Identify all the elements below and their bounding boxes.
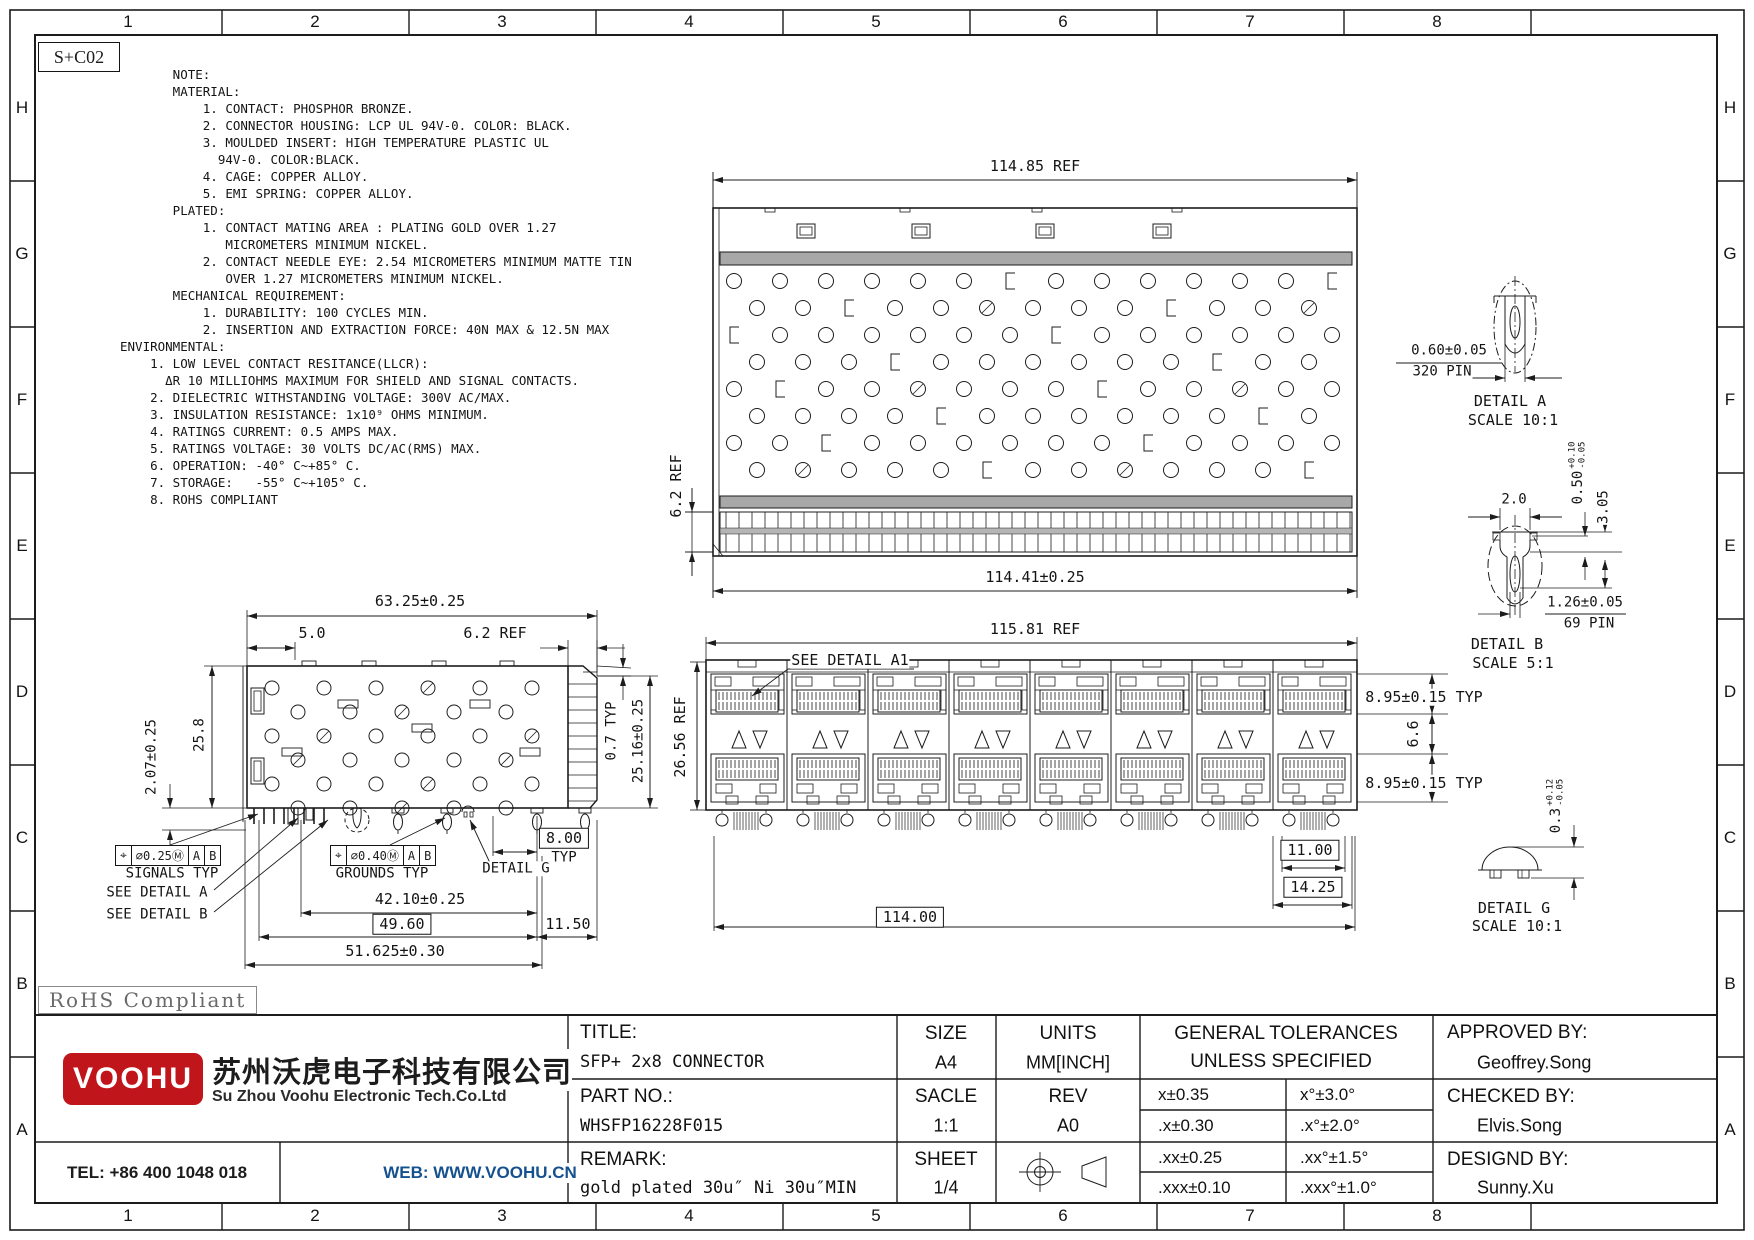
gdt-grounds-frame: ⌖⌀0.40ⓂAB xyxy=(330,845,436,866)
gdt-signals-tolerance: ⌀0.25Ⓜ xyxy=(131,846,188,865)
gdt-grounds-tolerance: ⌀0.40Ⓜ xyxy=(346,846,403,865)
gdt-signals-datum-a: A xyxy=(188,846,204,865)
zone-col-label: 3 xyxy=(496,12,507,32)
see-detail-a-label: SEE DETAIL A xyxy=(105,885,208,900)
detail-b-neck-dim: 0.50+0.10-0.05 xyxy=(1569,441,1588,506)
detail-g-dim: 0.3+0.12-0.05 xyxy=(1547,778,1566,834)
remark-value: gold plated 30u″ Ni 30u″MIN xyxy=(580,1178,856,1198)
dim-side-51: 51.625±0.30 xyxy=(344,943,445,960)
units-label: UNITS xyxy=(1040,1023,1097,1045)
zone-col-label: 4 xyxy=(683,1206,694,1226)
zone-row-label: E xyxy=(1723,536,1736,556)
detail-b-width-dim: 2.0 xyxy=(1500,492,1527,507)
tolerance-linear-4: .xxx±0.10 xyxy=(1158,1178,1231,1198)
notes-block: NOTE: MATERIAL: 1. CONTACT: PHOSPHOR BRO… xyxy=(120,66,632,508)
dim-side-height: 25.16±0.25 xyxy=(631,698,646,784)
units-value: MM[INCH] xyxy=(1026,1053,1110,1074)
scale-value: 1:1 xyxy=(933,1116,958,1137)
detail-b-eye-dim: 1.26±0.05 xyxy=(1546,595,1624,610)
zone-row-label: E xyxy=(15,536,28,556)
tolerance-angular-4: .xxx°±1.0° xyxy=(1300,1178,1377,1198)
zone-row-label: H xyxy=(15,98,29,118)
company-name-en: Su Zhou Voohu Electronic Tech.Co.Ltd xyxy=(212,1088,507,1106)
zone-col-label: 5 xyxy=(870,1206,881,1226)
signals-typ-label: SIGNALS TYP xyxy=(125,866,220,881)
zone-col-label: 6 xyxy=(1057,1206,1068,1226)
designed-by-label: DESIGND BY: xyxy=(1447,1149,1568,1171)
dim-side-lip: 0.7 TYP xyxy=(604,700,619,761)
zone-row-label: C xyxy=(1723,828,1737,848)
size-value: A4 xyxy=(935,1053,957,1074)
dim-side-comb-ref: 6.2 REF xyxy=(462,625,527,642)
tolerances-header-2: UNLESS SPECIFIED xyxy=(1190,1051,1372,1073)
company-name-cn: 苏州沃虎电子科技有限公司 xyxy=(212,1049,572,1091)
dim-front-14: 14.25 xyxy=(1283,877,1342,898)
zone-row-label: F xyxy=(1724,390,1736,410)
zone-col-label: 7 xyxy=(1244,12,1255,32)
company-tel: TEL: +86 400 1048 018 xyxy=(67,1163,247,1183)
zone-row-label: H xyxy=(1723,98,1737,118)
zone-row-label: D xyxy=(1723,682,1737,702)
gdt-grounds-datum-a: A xyxy=(403,846,419,865)
zone-col-label: 2 xyxy=(309,1206,320,1226)
checked-by-value: Elvis.Song xyxy=(1477,1116,1562,1137)
dim-front-port-bot: 8.95±0.15 TYP xyxy=(1364,775,1483,792)
remark-label: REMARK: xyxy=(580,1149,667,1171)
part-no-value: WHSFP16228F015 xyxy=(580,1116,723,1136)
zone-row-label: B xyxy=(1723,974,1736,994)
gdt-grounds-datum-b: B xyxy=(419,846,435,865)
title-label: TITLE: xyxy=(580,1022,637,1044)
tolerance-angular-2: .x°±2.0° xyxy=(1300,1116,1360,1136)
dim-side-total-width: 63.25±0.25 xyxy=(374,593,466,610)
dim-side-pitch: 8.00 xyxy=(539,828,589,849)
checked-by-label: CHECKED BY: xyxy=(1447,1086,1575,1108)
detail-b-neck-tolerance: +0.10-0.05 xyxy=(1569,442,1588,469)
detail-b-title: DETAIL B xyxy=(1470,636,1544,653)
detail-a-title: DETAIL A xyxy=(1473,393,1547,410)
grounds-typ-label: GROUNDS TYP xyxy=(335,866,430,881)
detail-b-neck-value: 0.50 xyxy=(1570,471,1586,505)
zone-row-label: F xyxy=(16,390,28,410)
detail-g-value: 0.3 xyxy=(1548,808,1564,833)
dim-front-height-ref: 26.56 REF xyxy=(672,695,689,778)
tolerance-angular-3: .xx°±1.5° xyxy=(1300,1148,1368,1168)
logo-brand-text: VOOHU xyxy=(73,1062,193,1096)
detail-a-dim: 0.60±0.05 xyxy=(1410,343,1488,358)
zone-col-label: 8 xyxy=(1431,1206,1442,1226)
dim-side-42: 42.10±0.25 xyxy=(374,891,466,908)
zone-col-label: 7 xyxy=(1244,1206,1255,1226)
detail-b-scale: SCALE 5:1 xyxy=(1471,655,1554,672)
zone-col-label: 2 xyxy=(309,12,320,32)
rev-value: A0 xyxy=(1057,1116,1079,1137)
gdt-signals-frame: ⌖⌀0.25ⓂAB xyxy=(115,845,221,866)
part-no-label: PART NO.: xyxy=(580,1086,673,1108)
zone-col-label: 1 xyxy=(122,1206,133,1226)
position-symbol-icon: ⌖ xyxy=(116,846,131,865)
position-symbol-icon: ⌖ xyxy=(331,846,346,865)
dim-front-11: 11.00 xyxy=(1280,840,1339,861)
doc-code: S+C02 xyxy=(38,42,120,72)
zone-col-label: 8 xyxy=(1431,12,1442,32)
dim-top-width-ref: 114.85 REF xyxy=(989,158,1081,175)
see-detail-b-label: SEE DETAIL B xyxy=(105,907,208,922)
drawing-sheet: S+C02 NOTE: MATERIAL: 1. CONTACT: PHOSPH… xyxy=(0,0,1754,1240)
detail-g-tolerance: +0.12-0.05 xyxy=(1547,779,1566,806)
dim-front-gap: 6.6 xyxy=(1405,719,1422,748)
dim-top-comb-ref: 6.2 REF xyxy=(668,453,685,518)
zone-col-label: 3 xyxy=(496,1206,507,1226)
zone-col-label: 1 xyxy=(122,12,133,32)
detail-g-ref-label: DETAIL G xyxy=(481,861,550,876)
approved-by-label: APPROVED BY: xyxy=(1447,1022,1587,1044)
rohs-badge: RoHS Compliant xyxy=(38,986,257,1014)
dim-top-width-tol: 114.41±0.25 xyxy=(984,569,1085,586)
company-web-link[interactable]: WEB: WWW.VOOHU.CN xyxy=(383,1163,577,1183)
dim-side-pin-height: 2.07±0.25 xyxy=(144,718,159,796)
tolerance-linear-3: .xx±0.25 xyxy=(1158,1148,1222,1168)
zone-row-label: G xyxy=(14,244,29,264)
dim-side-1150: 11.50 xyxy=(544,916,591,933)
zone-row-label: C xyxy=(15,828,29,848)
designed-by-value: Sunny.Xu xyxy=(1477,1178,1554,1199)
tolerance-angular-1: x°±3.0° xyxy=(1300,1085,1355,1105)
dim-side-body-height: 25.8 xyxy=(192,717,207,753)
gdt-signals-datum-b: B xyxy=(204,846,220,865)
detail-a-pin-count: 320 PIN xyxy=(1411,364,1472,379)
size-label: SIZE xyxy=(925,1023,967,1045)
dim-side-offset: 5.0 xyxy=(297,625,326,642)
tolerance-linear-1: x±0.35 xyxy=(1158,1085,1209,1105)
zone-row-label: G xyxy=(1722,244,1737,264)
see-detail-a1-label: SEE DETAIL A1 xyxy=(790,652,909,669)
sheet-value: 1/4 xyxy=(933,1178,958,1199)
detail-g-scale: SCALE 10:1 xyxy=(1471,918,1563,935)
dim-front-114: 114.00 xyxy=(876,907,944,928)
rev-label: REV xyxy=(1048,1086,1087,1108)
approved-by-value: Geoffrey.Song xyxy=(1477,1053,1591,1074)
detail-g-title: DETAIL G xyxy=(1477,900,1551,917)
detail-a-scale: SCALE 10:1 xyxy=(1467,412,1559,429)
dim-front-port-top: 8.95±0.15 TYP xyxy=(1364,689,1483,706)
company-logo: VOOHU xyxy=(63,1053,203,1105)
detail-b-height-dim: 3.05 xyxy=(1596,489,1611,525)
scale-label: SACLE xyxy=(915,1086,977,1108)
dim-side-pitch-typ: TYP xyxy=(550,850,577,865)
zone-col-label: 4 xyxy=(683,12,694,32)
title-value: SFP+ 2x8 CONNECTOR xyxy=(580,1052,764,1072)
zone-row-label: A xyxy=(15,1120,28,1140)
zone-col-label: 5 xyxy=(870,12,881,32)
zone-col-label: 6 xyxy=(1057,12,1068,32)
dim-front-width-ref: 115.81 REF xyxy=(989,621,1081,638)
dim-side-49: 49.60 xyxy=(372,914,431,935)
tolerances-header-1: GENERAL TOLERANCES xyxy=(1174,1023,1398,1045)
zone-row-label: B xyxy=(15,974,28,994)
tolerance-linear-2: .x±0.30 xyxy=(1158,1116,1214,1136)
detail-b-pin-count: 69 PIN xyxy=(1563,616,1616,631)
sheet-label: SHEET xyxy=(914,1149,977,1171)
zone-row-label: A xyxy=(1723,1120,1736,1140)
zone-row-label: D xyxy=(15,682,29,702)
